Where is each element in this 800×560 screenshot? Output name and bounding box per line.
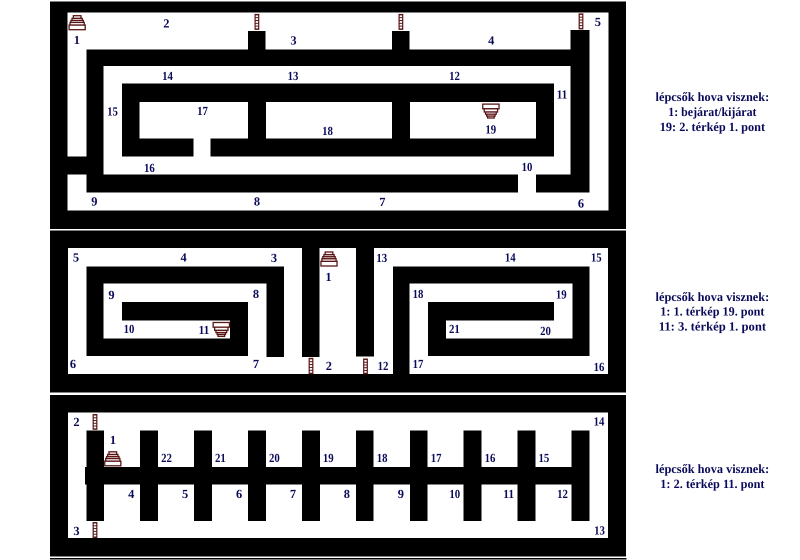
svg-text:7: 7 <box>379 195 385 209</box>
svg-text:1: 1 <box>110 433 116 447</box>
svg-text:3: 3 <box>271 251 277 265</box>
svg-text:9: 9 <box>398 487 404 501</box>
svg-text:2: 2 <box>326 359 332 373</box>
svg-text:5: 5 <box>73 251 79 265</box>
svg-text:20: 20 <box>540 324 551 338</box>
svg-text:6: 6 <box>70 357 76 371</box>
svg-text:lépcsők hova visznek:: lépcsők hova visznek: <box>656 90 770 104</box>
svg-text:8: 8 <box>254 195 260 209</box>
svg-text:19: 19 <box>556 288 567 302</box>
svg-text:8: 8 <box>344 487 350 501</box>
svg-text:17: 17 <box>413 357 424 371</box>
svg-text:7: 7 <box>290 487 296 501</box>
svg-text:9: 9 <box>91 195 97 209</box>
svg-text:3: 3 <box>290 34 296 48</box>
svg-text:6: 6 <box>236 487 242 501</box>
svg-text:14: 14 <box>594 415 605 429</box>
svg-text:11: 11 <box>199 323 210 337</box>
svg-text:9: 9 <box>108 288 114 302</box>
svg-text:2: 2 <box>73 415 79 429</box>
svg-text:19: 19 <box>323 451 334 465</box>
svg-text:11: 3. térkép 1. pont: 11: 3. térkép 1. pont <box>659 320 767 334</box>
svg-text:4: 4 <box>180 251 186 265</box>
svg-text:15: 15 <box>591 251 602 265</box>
svg-text:16: 16 <box>485 451 496 465</box>
svg-text:17: 17 <box>431 451 442 465</box>
svg-text:15: 15 <box>539 451 550 465</box>
svg-text:7: 7 <box>253 357 259 371</box>
svg-text:1: 1 <box>325 270 331 284</box>
svg-text:1: 2. térkép 11. pont: 1: 2. térkép 11. pont <box>660 477 765 491</box>
svg-text:19: 2. térkép 1. pont: 19: 2. térkép 1. pont <box>660 120 766 134</box>
svg-text:21: 21 <box>215 451 226 465</box>
svg-text:8: 8 <box>253 287 259 301</box>
svg-text:18: 18 <box>377 451 388 465</box>
svg-text:21: 21 <box>449 322 460 336</box>
svg-text:5: 5 <box>595 15 601 29</box>
svg-text:4: 4 <box>128 487 134 501</box>
svg-text:19: 19 <box>485 123 496 137</box>
svg-text:3: 3 <box>73 524 79 538</box>
svg-text:4: 4 <box>488 34 494 48</box>
svg-text:13: 13 <box>376 251 387 265</box>
svg-text:13: 13 <box>288 69 299 83</box>
svg-text:14: 14 <box>162 69 173 83</box>
svg-text:16: 16 <box>144 161 155 175</box>
svg-text:16: 16 <box>594 360 605 374</box>
svg-text:11: 11 <box>557 88 568 102</box>
svg-text:1: 1. térkép 19. pont: 1: 1. térkép 19. pont <box>660 305 765 319</box>
svg-text:18: 18 <box>413 287 424 301</box>
svg-text:6: 6 <box>578 197 584 211</box>
svg-text:20: 20 <box>269 451 280 465</box>
svg-text:22: 22 <box>161 451 172 465</box>
svg-text:lépcsők hova visznek:: lépcsők hova visznek: <box>656 290 770 304</box>
svg-text:11: 11 <box>503 487 514 501</box>
svg-text:2: 2 <box>163 17 169 31</box>
svg-text:5: 5 <box>182 487 188 501</box>
svg-text:10: 10 <box>124 322 135 336</box>
svg-text:lépcsők hova visznek:: lépcsők hova visznek: <box>656 462 770 476</box>
svg-text:17: 17 <box>197 104 208 118</box>
svg-text:12: 12 <box>449 69 460 83</box>
svg-text:12: 12 <box>557 487 568 501</box>
svg-text:10: 10 <box>449 487 460 501</box>
svg-text:18: 18 <box>322 124 333 138</box>
svg-text:14: 14 <box>505 251 516 265</box>
svg-text:13: 13 <box>594 524 605 538</box>
svg-text:1: bejárat/kijárat: 1: bejárat/kijárat <box>668 105 757 119</box>
svg-text:10: 10 <box>522 160 533 174</box>
svg-text:12: 12 <box>378 359 389 373</box>
svg-text:1: 1 <box>74 33 80 47</box>
svg-text:15: 15 <box>107 105 118 119</box>
